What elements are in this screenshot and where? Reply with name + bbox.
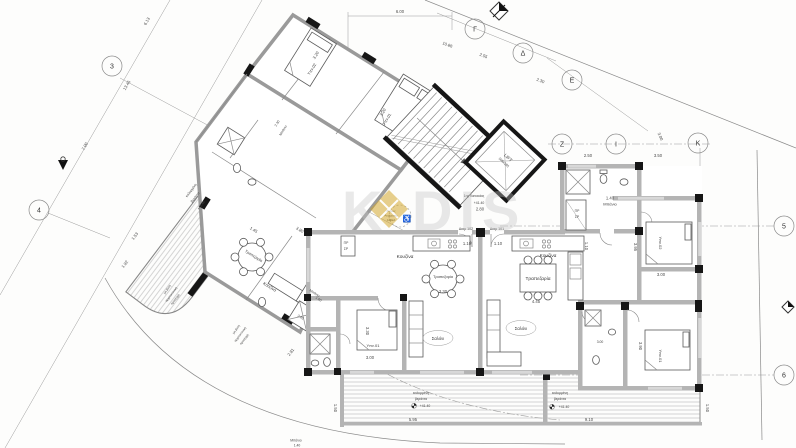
apt101-dining-dim: 4.45: [532, 299, 541, 304]
grid-4: 4: [37, 208, 41, 215]
apt101-living-label: Σαλόνι: [515, 326, 527, 331]
dim-l6: 2.81: [286, 347, 295, 357]
apt101-bed2-w: 3.95: [633, 243, 638, 252]
apt101-door2-dim: 1.10: [584, 242, 589, 251]
veranda-left-l1: καλυμμένη: [413, 391, 429, 395]
grid-6: 6: [782, 373, 786, 380]
wheelchair-icon: ♿: [403, 214, 412, 223]
sink: [620, 179, 628, 185]
veranda-left-l2: βεράντα: [415, 397, 427, 401]
dim-r2: 3.50: [654, 153, 663, 158]
dim-t1: 10.86: [442, 40, 454, 49]
apt102-dining-dim: 3.30: [439, 289, 448, 294]
apt102-living-label: Σαλόνι: [432, 336, 444, 341]
apt102-kitchen-label: Κουζίνα: [397, 254, 414, 260]
floor-plan-drawing: LIFT 105x185: [0, 0, 796, 448]
wing-toilet: [233, 163, 240, 172]
floor-plan-page: LIFT 105x185: [0, 0, 796, 448]
apt101-bed2-l: 3.00: [657, 272, 666, 277]
grid-iota: Ι: [615, 142, 617, 149]
apt102-dining-label: Τραπεζαρία: [433, 275, 454, 279]
apt101-bed2-label: Υπν.02: [658, 237, 663, 251]
apt101-bath-dim: 1.40: [606, 196, 615, 201]
north-arrow-icon: [490, 2, 508, 20]
apt101-kitchen-label: Κουζίνα: [540, 253, 557, 259]
apt101-bath2-dim: 3.00: [597, 340, 604, 344]
apt101-pr: ΠΡ: [575, 209, 580, 213]
apt101-dining-label: Τραπεζαρία: [525, 276, 550, 282]
apt101-bath-label: Μπάνιο: [603, 202, 617, 207]
dim-top: 6.00: [396, 9, 405, 14]
apt101-bed1-w: 3.90: [638, 342, 643, 351]
apt102-bed-l: 3.00: [366, 355, 375, 360]
toilet: [600, 175, 607, 184]
grid-5: 5: [782, 224, 786, 231]
apt101-sr: ΣΡ: [575, 215, 580, 219]
sink: [311, 360, 319, 366]
toilet2: [593, 356, 600, 365]
veranda-right-l1: καλυμμένη: [552, 391, 568, 395]
apt102-bath-label: Μπάνιο: [290, 439, 302, 443]
dim-veranda-left: 5.95: [409, 417, 418, 422]
dim-veranda-depth-r: 1.50: [705, 404, 710, 413]
dim-t3: 2.30: [536, 77, 546, 85]
apt102-sr: ΣΡ: [344, 247, 349, 251]
apt102-bath-dim: 1.40: [294, 444, 301, 448]
dim-l4: 1.53: [130, 231, 139, 241]
watermark: K DIS: [342, 179, 526, 242]
veranda-right-level: +41.40: [559, 405, 570, 409]
watermark-dis: DIS: [412, 179, 526, 242]
dim-t4: 3.00: [657, 132, 665, 142]
dim-l1: 6.13: [142, 16, 151, 26]
apt101-bed1-label: Υπν.01: [658, 350, 663, 364]
grid-epsilon: Ε: [570, 78, 575, 85]
veranda-right-l2: βεράντα: [554, 397, 566, 401]
grid-kappa: Κ: [696, 141, 701, 148]
dim-r1: 2.50: [584, 153, 593, 158]
sofa: [487, 300, 500, 358]
boundary-marker-icon: [782, 301, 794, 313]
benchmark-icon: [58, 157, 68, 170]
dim-l5: 1.92: [120, 259, 129, 269]
toilet: [324, 358, 331, 367]
grid-gamma: Γ: [473, 27, 477, 34]
grid-delta: Δ: [521, 51, 526, 58]
dim-veranda-right: 9.10: [585, 417, 594, 422]
apt102-bed-w: 3.30: [365, 327, 370, 336]
veranda-left-level: +41.40: [420, 404, 431, 408]
wing-toilet-2: [258, 297, 265, 306]
apt102-bed-label: Υπν.01: [367, 343, 381, 348]
grid-zeta: Ζ: [560, 142, 565, 149]
grid-3: 3: [110, 64, 114, 71]
dim-t2: 2.55: [479, 52, 489, 60]
sink2: [608, 329, 615, 335]
wing-sink: [248, 179, 256, 185]
dim-veranda-depth-l: 1.50: [333, 404, 338, 413]
